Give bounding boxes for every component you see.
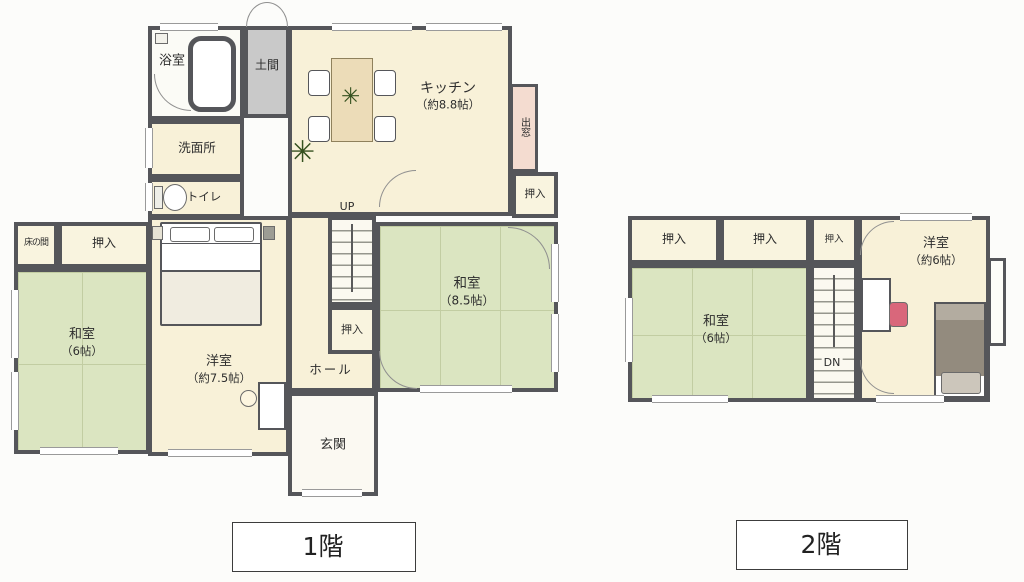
window bbox=[145, 128, 153, 168]
window bbox=[11, 290, 19, 358]
closet-2f-2-label: 押入 bbox=[753, 232, 777, 248]
kitchen-name: キッチン bbox=[420, 80, 476, 96]
desk-2f bbox=[861, 278, 891, 332]
bay-window-label: 出窓 bbox=[518, 117, 531, 137]
bathroom-label: 浴室 bbox=[159, 54, 185, 71]
washroom-label: 洗面所 bbox=[178, 140, 216, 156]
toilet-bowl bbox=[163, 184, 187, 211]
closet-2f-1-label: 押入 bbox=[662, 232, 686, 248]
floor1-title: 1階 bbox=[303, 531, 344, 564]
washitsu-85-label: 和室 （8.5帖） bbox=[439, 275, 494, 308]
floor2-title: 2階 bbox=[801, 529, 842, 562]
washitsu-6-size: （6帖） bbox=[61, 344, 103, 359]
window bbox=[420, 385, 512, 393]
window bbox=[168, 449, 252, 457]
closet-west-label: 押入 bbox=[92, 236, 116, 252]
washitsu-6-2f-name: 和室 bbox=[703, 314, 729, 329]
dining-chair bbox=[374, 116, 396, 142]
window bbox=[551, 314, 559, 372]
washitsu-6-2f-size: （6帖） bbox=[695, 331, 737, 346]
dining-chair bbox=[308, 70, 330, 96]
bed-2f bbox=[934, 302, 986, 398]
window bbox=[145, 183, 153, 211]
entrance-door-arc bbox=[246, 2, 288, 27]
bed-2f-pillow bbox=[941, 372, 981, 394]
table-plant-icon: ✳ bbox=[341, 86, 360, 109]
desk bbox=[258, 382, 286, 430]
youshitsu-6-2f-label: 洋室 （約6帖） bbox=[909, 236, 962, 268]
youshitsu-6-2f-size: （約6帖） bbox=[909, 253, 962, 268]
toilet-label: トイレ bbox=[187, 190, 222, 205]
window bbox=[900, 213, 972, 221]
window bbox=[426, 23, 502, 31]
bay-window-2f bbox=[988, 258, 1006, 346]
washitsu-85-size: （8.5帖） bbox=[439, 293, 494, 309]
doma-label: 土間 bbox=[255, 58, 279, 74]
genkan-entry-door bbox=[302, 489, 362, 497]
washitsu-6-2f-label: 和室 （6帖） bbox=[695, 314, 737, 346]
window bbox=[332, 23, 412, 31]
bed-2f-blanket bbox=[936, 320, 984, 376]
closet-center-label: 押入 bbox=[341, 323, 363, 337]
floor-plant-icon: ✳ bbox=[290, 138, 315, 168]
window bbox=[551, 244, 559, 302]
window bbox=[652, 395, 728, 403]
nightstand bbox=[263, 226, 275, 240]
pillow bbox=[170, 227, 210, 242]
stairs-dn-label: DN bbox=[822, 356, 843, 370]
youshitsu-75-label: 洋室 （約7.5帖） bbox=[187, 354, 251, 386]
washitsu-6-label: 和室 （6帖） bbox=[61, 327, 103, 359]
washitsu-6-name: 和室 bbox=[69, 327, 95, 342]
bathtub bbox=[188, 36, 236, 112]
washitsu-6-room bbox=[14, 268, 150, 454]
bed-2f-head bbox=[936, 304, 984, 320]
window bbox=[160, 23, 218, 31]
floor-plan-canvas: ✳ ✳ bbox=[0, 0, 1024, 582]
toilet-tank bbox=[154, 186, 163, 209]
stairs-up-label: UP bbox=[340, 200, 355, 214]
dining-chair bbox=[374, 70, 396, 96]
tokonoma-label: 床の間 bbox=[24, 238, 48, 250]
youshitsu-6-2f-name: 洋室 bbox=[923, 236, 949, 251]
genkan-label: 玄関 bbox=[320, 438, 346, 455]
window bbox=[11, 372, 19, 430]
washitsu-85-name: 和室 bbox=[454, 275, 481, 291]
stairs-up-arrow bbox=[351, 224, 353, 292]
closet-ne-label: 押入 bbox=[525, 188, 546, 202]
bed bbox=[160, 222, 262, 326]
bath-fixture bbox=[155, 33, 168, 44]
closet-2f-3-label: 押入 bbox=[824, 234, 843, 246]
kitchen-size: （約8.8帖） bbox=[416, 98, 480, 113]
stairs-dn-arrow bbox=[833, 275, 835, 347]
pillow bbox=[214, 227, 254, 242]
nightstand bbox=[152, 226, 163, 240]
hall-label: ホール bbox=[309, 362, 353, 378]
youshitsu-75-size: （約7.5帖） bbox=[187, 371, 251, 386]
desk-chair bbox=[240, 390, 257, 407]
kitchen-label: キッチン （約8.8帖） bbox=[416, 79, 480, 112]
window bbox=[625, 298, 633, 362]
bed-blanket bbox=[162, 270, 260, 324]
chair-2f bbox=[889, 302, 908, 327]
window bbox=[40, 447, 118, 455]
window bbox=[876, 395, 944, 403]
youshitsu-75-name: 洋室 bbox=[206, 354, 232, 369]
